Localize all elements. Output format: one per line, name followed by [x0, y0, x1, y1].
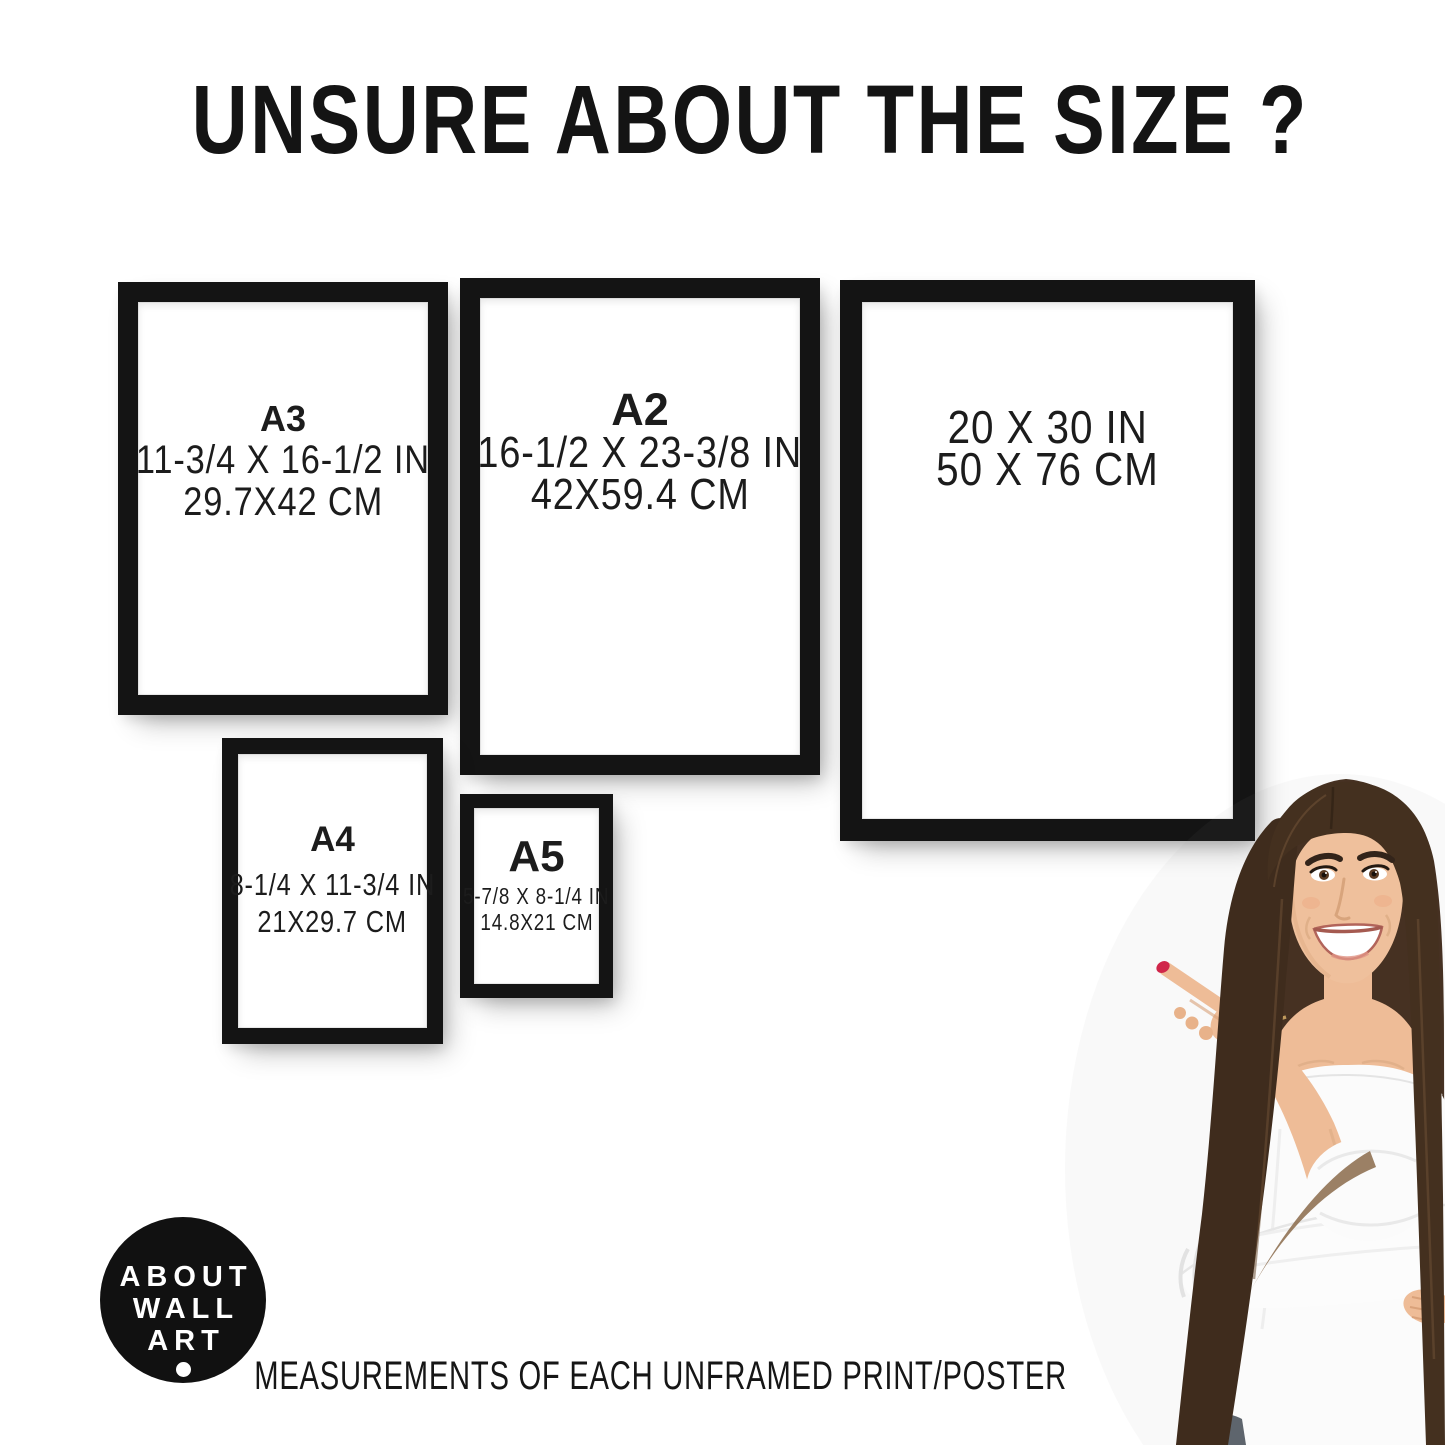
size-label-a5: A5 — [508, 834, 564, 880]
frame-a3: A3 11-3/4 X 16-1/2 IN 29.7X42 CM — [118, 282, 448, 715]
frame-20x30: 20 X 30 IN 50 X 76 CM — [840, 280, 1255, 841]
size-inches-20x30: 20 X 30 IN — [947, 406, 1147, 448]
size-label-a3: A3 — [260, 398, 306, 439]
frame-a3-content: A3 11-3/4 X 16-1/2 IN 29.7X42 CM — [138, 302, 428, 695]
size-cm-a4: 21X29.7 CM — [258, 903, 408, 940]
size-inches-a2: 16-1/2 X 23-3/8 IN — [478, 432, 803, 474]
frame-a4-content: A4 8-1/4 X 11-3/4 IN 21X29.7 CM — [238, 754, 427, 1028]
page-title-text: UNSURE ABOUT THE SIZE ? — [192, 64, 1309, 176]
frame-a2-content: A2 16-1/2 X 23-3/8 IN 42X59.4 CM — [480, 298, 800, 755]
size-cm-a5: 14.8X21 CM — [480, 909, 593, 935]
size-guide-infographic: UNSURE ABOUT THE SIZE ? A3 11-3/4 X 16-1… — [0, 0, 1445, 1445]
frame-20x30-content: 20 X 30 IN 50 X 76 CM — [862, 302, 1233, 819]
size-inches-a3: 11-3/4 X 16-1/2 IN — [136, 439, 430, 481]
size-label-a2: A2 — [611, 387, 669, 432]
size-inches-a5: 5-7/8 X 8-1/4 IN — [463, 883, 609, 909]
page-title: UNSURE ABOUT THE SIZE ? — [0, 64, 1445, 176]
frame-a2: A2 16-1/2 X 23-3/8 IN 42X59.4 CM — [460, 278, 820, 775]
frame-a5: A5 5-7/8 X 8-1/4 IN 14.8X21 CM — [460, 794, 613, 998]
frame-a5-content: A5 5-7/8 X 8-1/4 IN 14.8X21 CM — [474, 808, 599, 984]
frame-a4: A4 8-1/4 X 11-3/4 IN 21X29.7 CM — [222, 738, 443, 1044]
size-cm-20x30: 50 X 76 CM — [936, 448, 1159, 490]
size-inches-a4: 8-1/4 X 11-3/4 IN — [230, 866, 436, 903]
size-label-a4: A4 — [310, 820, 355, 860]
size-cm-a2: 42X59.4 CM — [531, 474, 750, 516]
brand-logo-line1: ABOUT — [113, 1261, 252, 1293]
size-cm-a3: 29.7X42 CM — [183, 481, 383, 523]
caption-text: MEASUREMENTS OF EACH UNFRAMED PRINT/POST… — [254, 1352, 1067, 1400]
brand-logo-line2: WALL — [127, 1293, 239, 1325]
woman-pointing-illustration — [1030, 769, 1445, 1445]
